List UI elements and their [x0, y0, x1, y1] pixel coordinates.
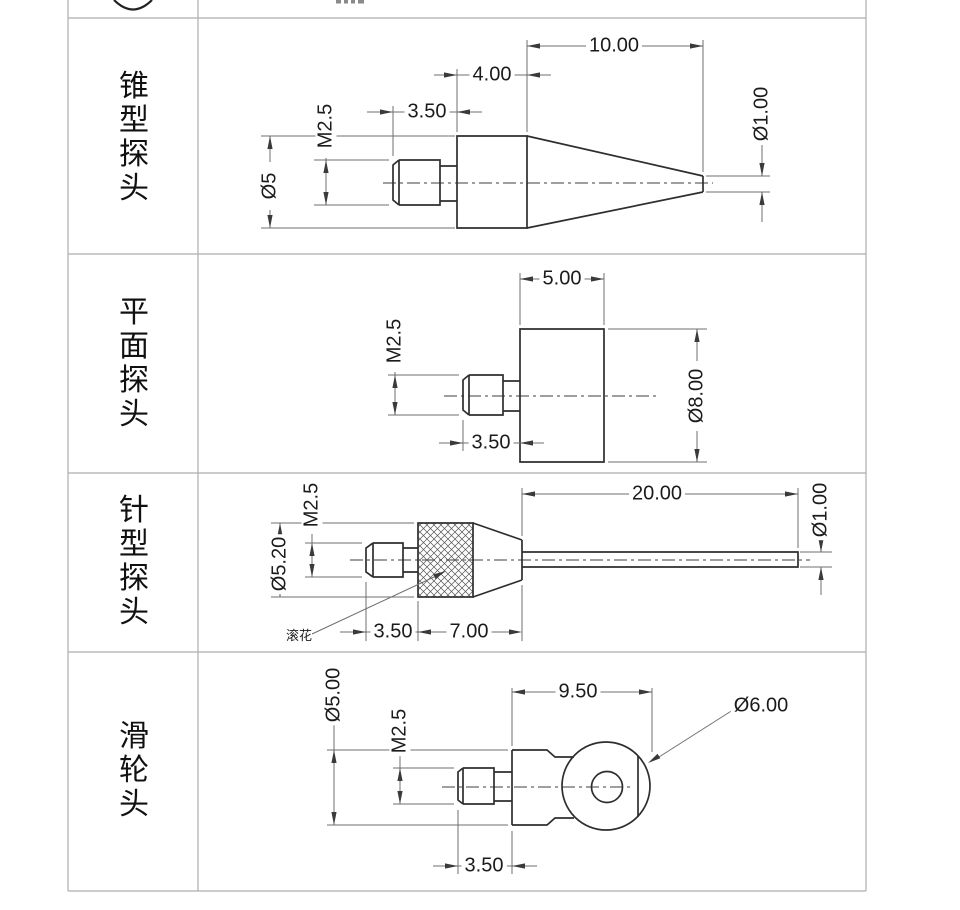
dim-cone-total-length: 10.00: [586, 36, 642, 57]
dim-needle-body-dia: Ø5.20: [270, 534, 291, 594]
dim-flat-thread-spec: M2.5: [385, 316, 406, 366]
dim-needle-body-length: 7.00: [447, 622, 492, 643]
dim-flat-body-dia: Ø8.00: [687, 366, 708, 426]
flat-probe-drawing: [388, 273, 707, 462]
dim-needle-length: 20.00: [629, 484, 685, 505]
dim-pulley-thread-length: 3.50: [462, 856, 507, 877]
previous-row-remnant: [114, 0, 364, 10]
dim-pulley-thread-spec: M2.5: [390, 706, 411, 756]
dim-needle-dia: Ø1.00: [811, 480, 832, 540]
dim-pulley-wheel-dia: Ø6.00: [731, 696, 791, 717]
dim-needle-thread-spec: M2.5: [302, 480, 323, 530]
cone-probe-drawing: [261, 40, 770, 228]
label-knurl: 滚花: [283, 629, 315, 643]
dim-cone-thread-spec: M2.5: [316, 101, 337, 151]
dim-pulley-body-dia: Ø5.00: [324, 665, 345, 725]
probe-drawing-table: 锥型探头 平面探头 针型探头 滑轮头 10.00 4.00 3.50 M2.5 …: [0, 0, 960, 910]
dim-cone-body-dia: Ø5: [260, 170, 281, 203]
row-label-cone-probe: 锥型探头: [117, 70, 151, 206]
row-label-needle-probe: 针型探头: [117, 494, 151, 630]
needle-probe-drawing: [271, 488, 832, 641]
dim-cone-thread-length: 3.50: [405, 102, 450, 123]
row-label-pulley-head: 滑轮头: [117, 720, 151, 822]
dim-flat-thread-length: 3.50: [469, 433, 514, 454]
row-label-flat-probe: 平面探头: [117, 296, 151, 432]
dim-pulley-head-length: 9.50: [556, 682, 601, 703]
dim-flat-body-length: 5.00: [540, 269, 585, 290]
table-grid: [68, 0, 866, 891]
dim-cone-tip-dia: Ø1.00: [752, 84, 773, 144]
dim-needle-thread-length: 3.50: [371, 622, 416, 643]
dim-cone-body-length: 4.00: [470, 65, 515, 86]
